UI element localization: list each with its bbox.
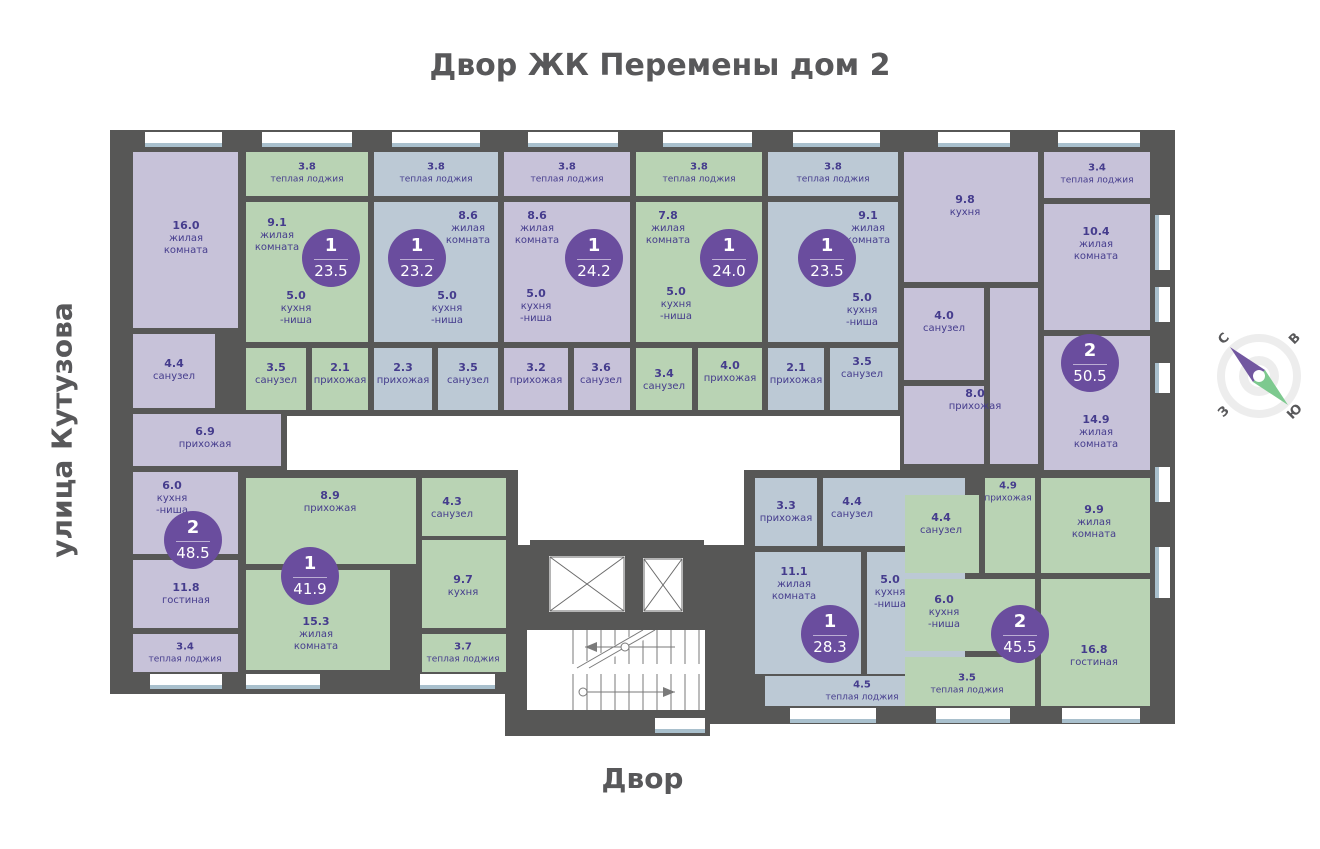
apt1-label-hall: 2.1прихожая xyxy=(314,361,367,387)
window xyxy=(793,132,880,147)
apt1-label-bath: 3.5санузел xyxy=(255,361,297,387)
apartment-badge-4[interactable]: 124.0 xyxy=(700,229,758,287)
apt9-label-hall: 4.9прихожая xyxy=(984,480,1031,503)
apt3-label-bath: 3.6санузел xyxy=(580,361,622,387)
apt6-label-loggia: 3.4теплая лоджия xyxy=(1060,162,1133,185)
apt5-label-living: 9.1жилая комната xyxy=(846,209,890,247)
apt8-label-living: 11.1жилая комната xyxy=(772,565,816,603)
window xyxy=(145,132,222,147)
apt1-label-living: 9.1жилая комната xyxy=(255,216,299,254)
elevator-lobby xyxy=(518,455,744,545)
window xyxy=(1062,708,1140,723)
stairs xyxy=(527,630,705,710)
apt0-label-kitchen: 6.0кухня -ниша xyxy=(156,479,188,517)
apt6-label-kitchen: 9.8кухня xyxy=(950,193,980,219)
apt5-label-kitchen: 5.0кухня -ниша xyxy=(846,291,878,329)
window xyxy=(420,674,495,689)
window xyxy=(528,132,618,147)
apt1-label-loggia: 3.8теплая лоджия xyxy=(270,161,343,184)
floor-plan: Двор ЖК Перемены дом 2 улица Кутузова Дв… xyxy=(0,0,1320,849)
apt2-label-living: 8.6жилая комната xyxy=(446,209,490,247)
elevator-shaft-small xyxy=(643,558,683,612)
window xyxy=(655,718,705,733)
apt2-label-loggia: 3.8теплая лоджия xyxy=(399,161,472,184)
window xyxy=(1155,363,1170,393)
apt2-label-bath: 3.5санузел xyxy=(447,361,489,387)
apt3-label-hall: 3.2прихожая xyxy=(510,361,563,387)
apt7-label-kitchen: 9.7кухня xyxy=(448,573,478,599)
apt4-label-hall: 4.0прихожая xyxy=(704,359,757,385)
apt6-room-living1[interactable] xyxy=(1044,204,1150,330)
apt9-label-bath: 4.4санузел xyxy=(920,511,962,537)
window xyxy=(790,708,876,723)
apt7-label-loggia: 3.7теплая лоджия xyxy=(426,641,499,664)
apt3-label-loggia: 3.8теплая лоджия xyxy=(530,161,603,184)
apartment-badge-6[interactable]: 250.5 xyxy=(1061,334,1119,392)
window xyxy=(1058,132,1140,147)
window xyxy=(1155,215,1170,270)
apt9-label-living: 9.9жилая комната xyxy=(1072,503,1116,541)
apt3-label-living: 8.6жилая комната xyxy=(515,209,559,247)
window xyxy=(1155,467,1170,502)
window xyxy=(1155,287,1170,322)
apt4-label-living: 7.8жилая комната xyxy=(646,209,690,247)
apt3-label-kitchen: 5.0кухня -ниша xyxy=(520,287,552,325)
apt4-label-bath: 3.4санузел xyxy=(643,367,685,393)
apt5-label-bath: 3.5санузел xyxy=(841,355,883,381)
apt5-label-hall: 2.1прихожая xyxy=(770,361,823,387)
apartment-badge-0[interactable]: 248.5 xyxy=(164,511,222,569)
window xyxy=(663,132,752,147)
apt6-room-hall-a[interactable] xyxy=(990,288,1038,464)
window xyxy=(246,674,320,689)
apt6-label-living1: 10.4жилая комната xyxy=(1074,225,1118,263)
window xyxy=(262,132,352,147)
window xyxy=(936,708,1010,723)
apt2-label-hall: 2.3прихожая xyxy=(377,361,430,387)
apartment-badge-3[interactable]: 124.2 xyxy=(565,229,623,287)
apt0-label-bath: 4.4санузел xyxy=(153,357,195,383)
apt2-label-kitchen: 5.0кухня -ниша xyxy=(431,289,463,327)
window xyxy=(1155,547,1170,598)
plan-title: Двор ЖК Перемены дом 2 xyxy=(0,48,1320,83)
apartment-badge-8[interactable]: 128.3 xyxy=(801,605,859,663)
apt4-label-kitchen: 5.0кухня -ниша xyxy=(660,285,692,323)
apartment-badge-7[interactable]: 141.9 xyxy=(281,547,339,605)
apt1-label-kitchen: 5.0кухня -ниша xyxy=(280,289,312,327)
apt8-label-hall: 3.3прихожая xyxy=(760,499,813,525)
apartment-badge-1[interactable]: 123.5 xyxy=(302,229,360,287)
apt0-label-living: 16.0жилая комната xyxy=(164,219,208,257)
elevator-shaft-large xyxy=(549,556,625,612)
apt8-label-loggia: 4.5теплая лоджия xyxy=(825,679,898,702)
apt6-label-hall: 8.0прихожая xyxy=(949,387,1002,413)
apartment-badge-9[interactable]: 245.5 xyxy=(991,605,1049,663)
apt9-label-kitchen: 6.0кухня -ниша xyxy=(928,593,960,631)
window xyxy=(150,674,222,689)
window xyxy=(392,132,480,147)
apt0-label-hall: 6.9прихожая xyxy=(179,425,232,451)
apt7-label-living: 15.3жилая комната xyxy=(294,615,338,653)
apt4-label-loggia: 3.8теплая лоджия xyxy=(662,161,735,184)
apt0-label-lounge: 11.8гостиная xyxy=(162,581,210,607)
window xyxy=(938,132,1010,147)
street-label: улица Кутузова xyxy=(46,302,79,558)
apt9-label-loggia: 3.5теплая лоджия xyxy=(930,672,1003,695)
apt5-label-loggia: 3.8теплая лоджия xyxy=(796,161,869,184)
apt6-label-living2: 14.9жилая комната xyxy=(1074,413,1118,451)
apt6-label-bath: 4.0санузел xyxy=(923,309,965,335)
apt9-label-lounge: 16.8гостиная xyxy=(1070,643,1118,669)
apt7-label-bath: 4.3санузел xyxy=(431,495,473,521)
apt7-label-hall: 8.9прихожая xyxy=(304,489,357,515)
apt8-label-bath: 4.4санузел xyxy=(831,495,873,521)
apartment-badge-2[interactable]: 123.2 xyxy=(388,229,446,287)
apartment-badge-5[interactable]: 123.5 xyxy=(798,229,856,287)
apt8-label-kitchen: 5.0кухня -ниша xyxy=(874,573,906,611)
apt0-label-loggia: 3.4теплая лоджия xyxy=(148,641,221,664)
yard-label: Двор xyxy=(110,762,1175,795)
